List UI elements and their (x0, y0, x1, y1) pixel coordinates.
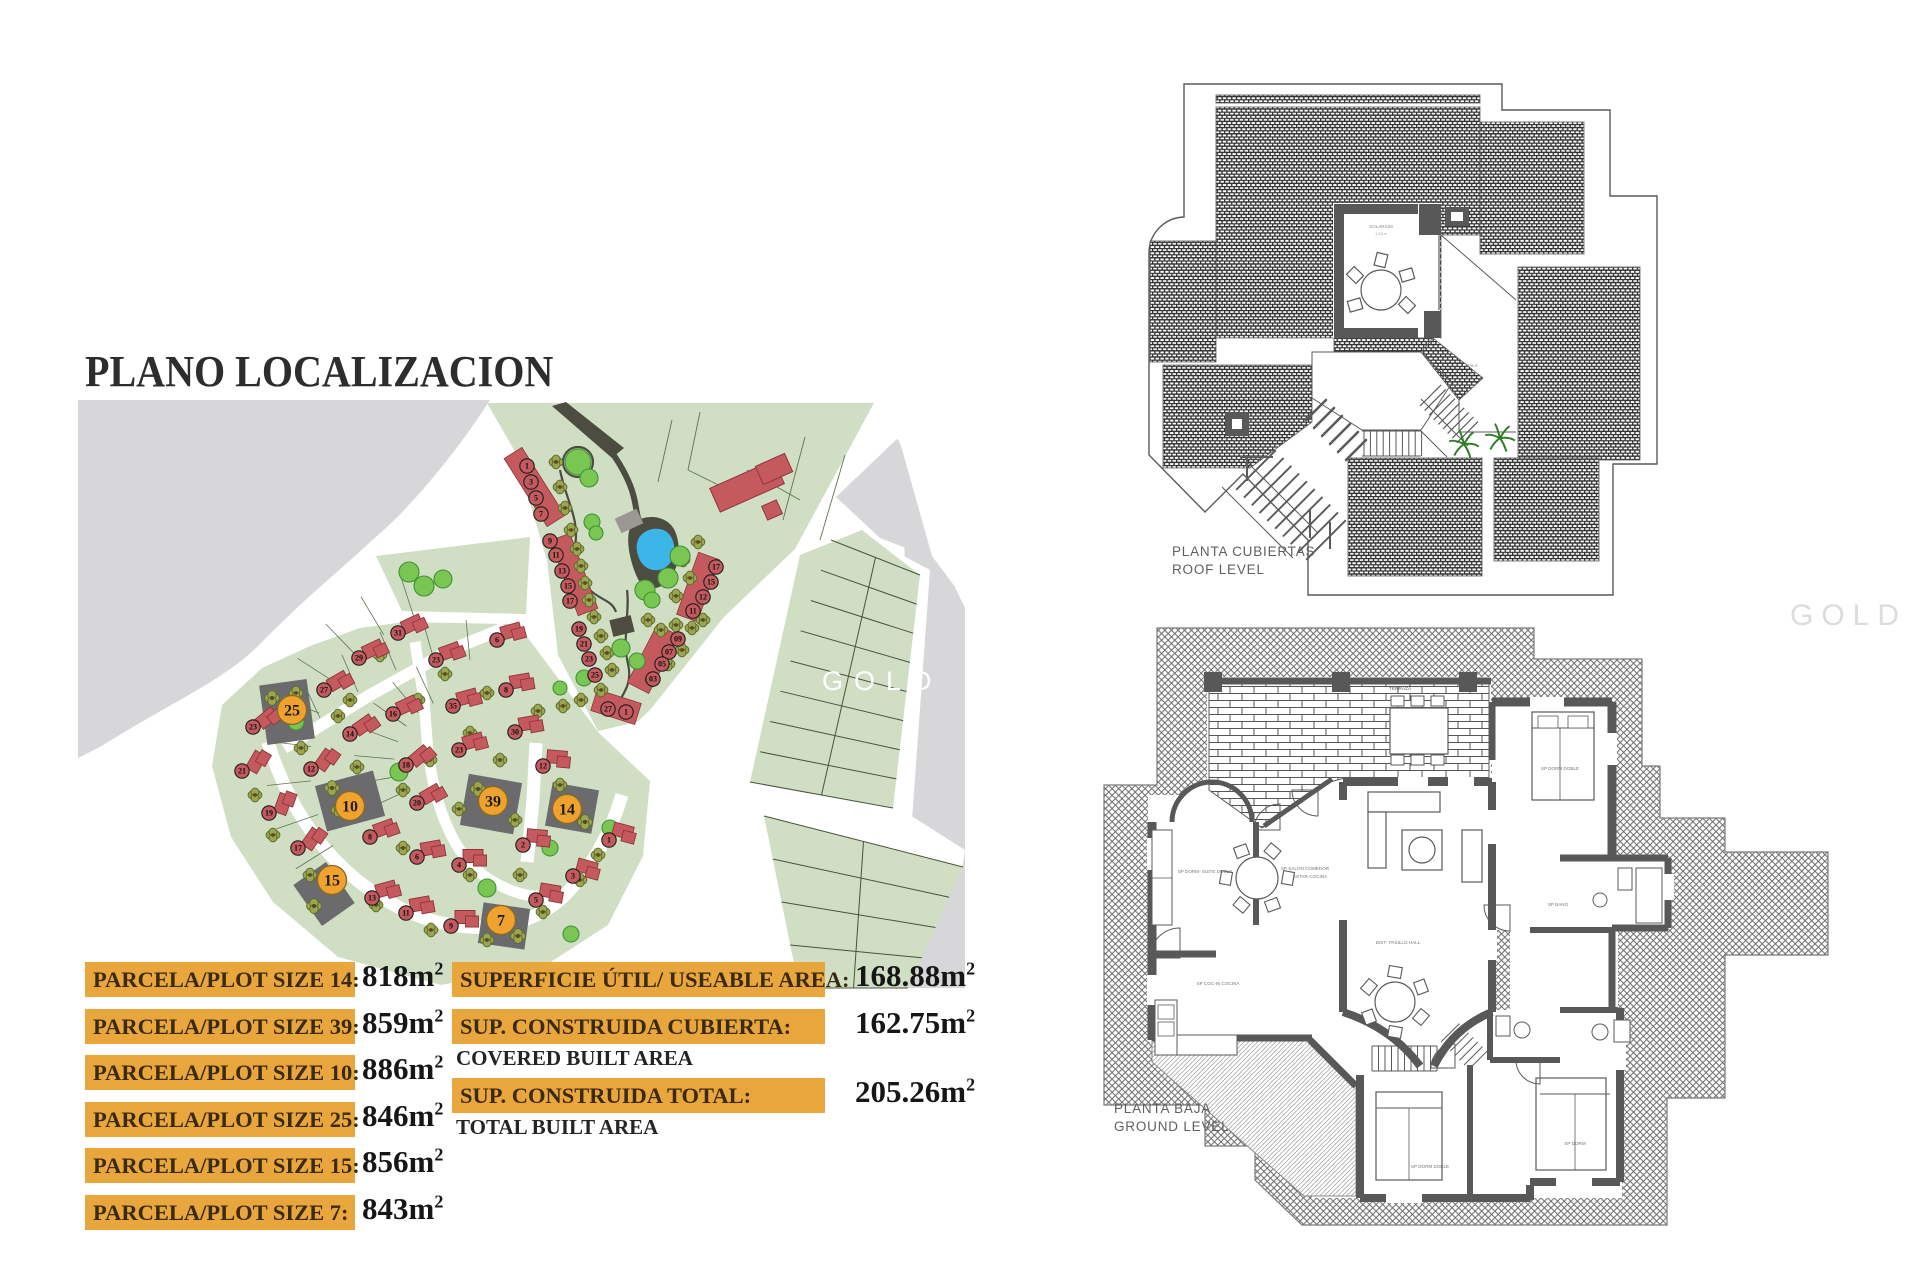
svg-text:7: 7 (497, 913, 505, 930)
svg-text:39: 39 (485, 794, 501, 811)
svg-text:PLANTA BAJA: PLANTA BAJA (1114, 1101, 1211, 1116)
svg-text:SALA: SALA (1466, 363, 1478, 368)
svg-text:17: 17 (566, 597, 574, 606)
svg-text:23: 23 (585, 655, 593, 664)
svg-text:31: 31 (394, 629, 402, 638)
svg-text:18: 18 (402, 761, 410, 770)
svg-text:11: 11 (552, 551, 560, 560)
svg-text:6: 6 (415, 853, 419, 862)
svg-text:1: 1 (607, 836, 611, 845)
svg-text:30: 30 (511, 728, 519, 737)
svg-text:3: 3 (529, 478, 533, 487)
svg-text:03: 03 (649, 675, 657, 684)
svg-text:9: 9 (449, 922, 453, 931)
svg-text:DIST- PASILLO HALL: DIST- PASILLO HALL (1376, 940, 1421, 945)
svg-text:27: 27 (320, 686, 328, 695)
svg-text:11: 11 (402, 909, 410, 918)
svg-text:35: 35 (449, 702, 457, 711)
svg-text:17: 17 (712, 563, 720, 572)
svg-text:11: 11 (689, 607, 697, 616)
svg-text:1: 1 (624, 708, 628, 717)
svg-text:10: 10 (342, 799, 358, 816)
svg-text:GROUND LEVEL: GROUND LEVEL (1114, 1119, 1229, 1134)
svg-text:15: 15 (324, 873, 340, 890)
svg-text:5: 5 (534, 896, 538, 905)
svg-text:21: 21 (580, 640, 588, 649)
svg-text:13: 13 (368, 894, 376, 903)
svg-text:1.23 m: 1.23 m (1375, 232, 1387, 236)
svg-text:SP DORM DOBLE: SP DORM DOBLE (1411, 1164, 1449, 1169)
svg-text:19: 19 (575, 625, 583, 634)
svg-text:13: 13 (558, 567, 566, 576)
svg-text:25: 25 (591, 671, 599, 680)
svg-text:12: 12 (699, 593, 707, 602)
svg-text:SP DORM DOBLE: SP DORM DOBLE (1541, 766, 1579, 771)
svg-text:14: 14 (559, 802, 575, 819)
svg-text:23: 23 (249, 723, 257, 732)
svg-text:SP SALON COMEDOR: SP SALON COMEDOR (1281, 866, 1330, 871)
svg-text:29: 29 (355, 654, 363, 663)
svg-text:19: 19 (265, 809, 273, 818)
svg-text:3: 3 (571, 872, 575, 881)
svg-text:PLANTA CUBIERTAS: PLANTA CUBIERTAS (1172, 544, 1315, 559)
svg-text:8.1 m: 8.1 m (1467, 371, 1477, 375)
svg-text:12: 12 (307, 765, 315, 774)
svg-text:14: 14 (346, 730, 354, 739)
svg-text:20: 20 (413, 799, 421, 808)
svg-text:2: 2 (521, 841, 525, 850)
svg-text:1: 1 (525, 462, 529, 471)
svg-text:SOLARIUM: SOLARIUM (1369, 224, 1393, 229)
svg-text:27: 27 (604, 705, 612, 714)
svg-text:07: 07 (665, 648, 673, 657)
svg-text:09: 09 (674, 635, 682, 644)
svg-text:7: 7 (539, 510, 543, 519)
svg-text:23: 23 (432, 656, 440, 665)
svg-text:15: 15 (564, 582, 572, 591)
svg-text:ESTAR-COCINA: ESTAR-COCINA (1293, 874, 1328, 879)
svg-text:23: 23 (455, 746, 463, 755)
svg-text:8: 8 (368, 833, 372, 842)
svg-text:6: 6 (495, 636, 499, 645)
svg-text:25: 25 (284, 703, 300, 720)
svg-text:TERRAZA: TERRAZA (1389, 686, 1412, 692)
svg-text:17: 17 (294, 844, 302, 853)
svg-text:05: 05 (658, 660, 666, 669)
svg-text:15: 15 (707, 578, 715, 587)
svg-text:12: 12 (539, 762, 547, 771)
svg-text:ROOF LEVEL: ROOF LEVEL (1172, 562, 1265, 577)
svg-text:SP BANO: SP BANO (1548, 902, 1569, 907)
svg-text:5: 5 (534, 494, 538, 503)
svg-text:SP COC-IN COCINA: SP COC-IN COCINA (1197, 981, 1241, 986)
svg-text:16: 16 (389, 710, 397, 719)
svg-text:GOLD: GOLD (1790, 599, 1907, 632)
svg-text:4: 4 (457, 861, 461, 870)
svg-text:21: 21 (238, 767, 246, 776)
svg-text:GOLD: GOLD (822, 666, 943, 696)
svg-text:SP DORM- SUITE DOBLE: SP DORM- SUITE DOBLE (1178, 869, 1233, 874)
svg-text:8: 8 (504, 686, 508, 695)
svg-text:9: 9 (548, 537, 552, 546)
svg-text:SP DORM: SP DORM (1564, 1141, 1586, 1146)
